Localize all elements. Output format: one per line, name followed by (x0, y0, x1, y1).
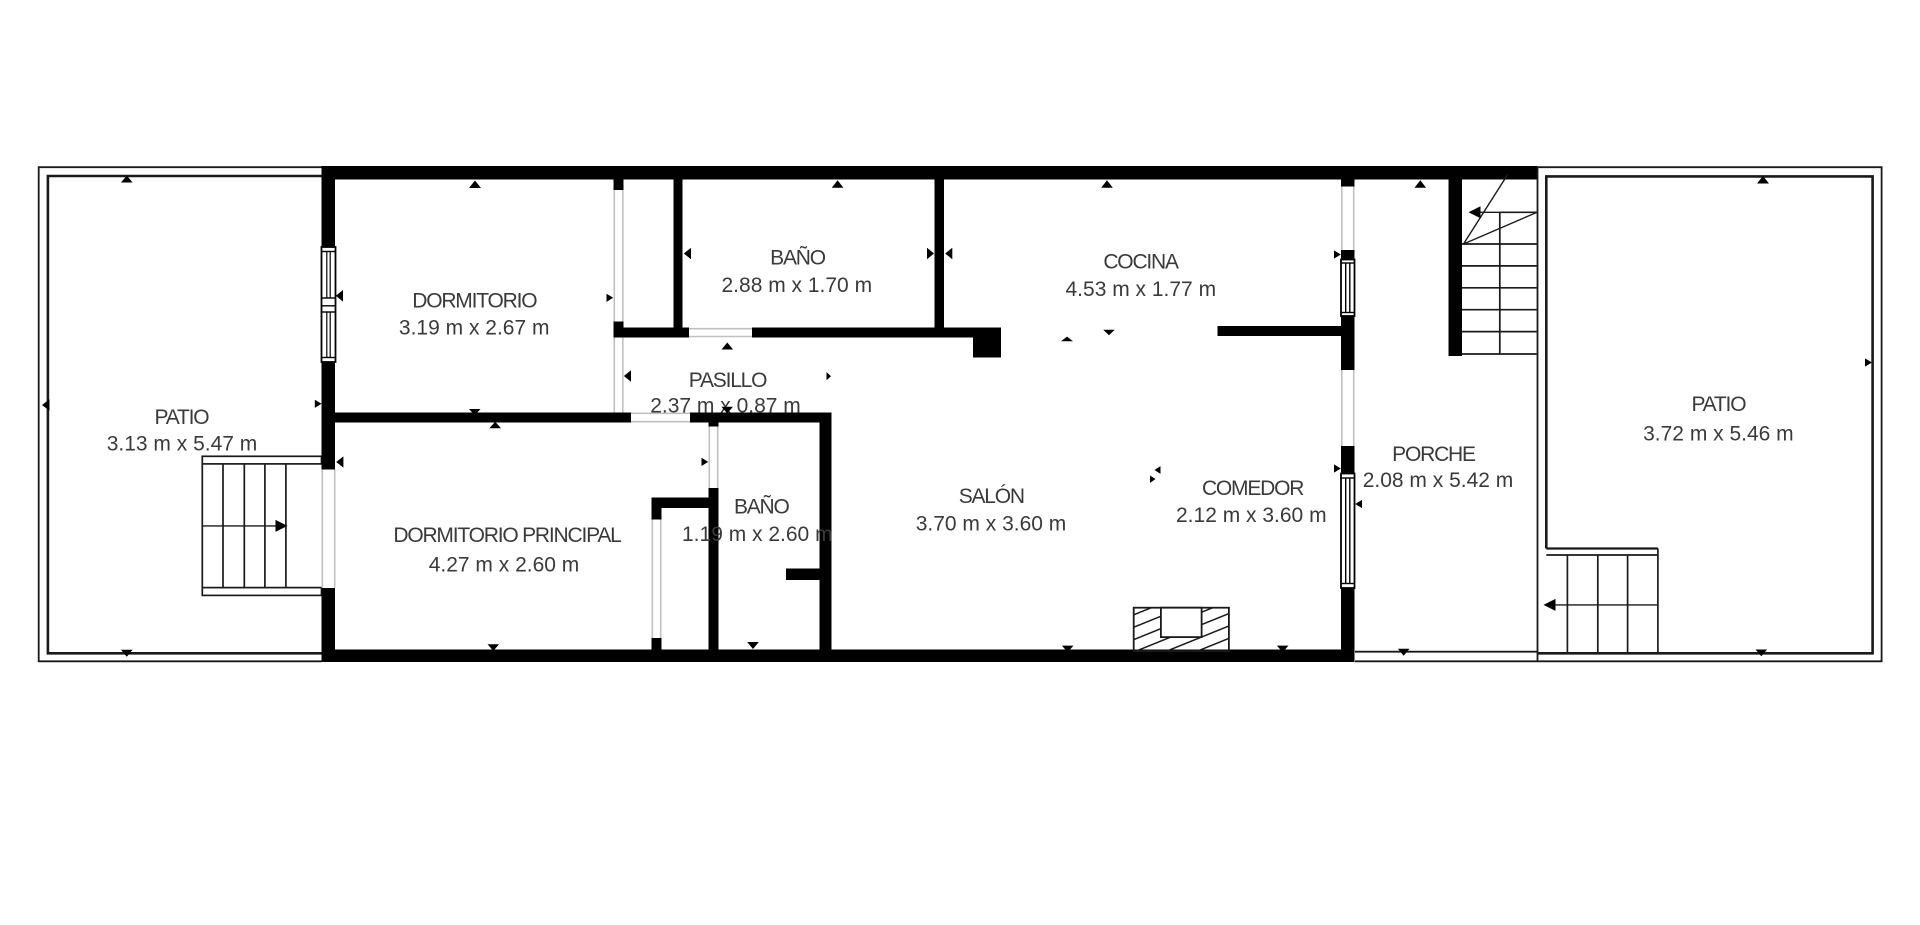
svg-text:3.70 m x 3.60 m: 3.70 m x 3.60 m (916, 512, 1067, 535)
svg-text:PATIO: PATIO (1691, 393, 1746, 416)
svg-text:DORMITORIO PRINCIPAL: DORMITORIO PRINCIPAL (393, 524, 621, 547)
svg-text:DORMITORIO: DORMITORIO (412, 289, 537, 312)
svg-text:3.72 m x 5.46 m: 3.72 m x 5.46 m (1643, 423, 1794, 446)
svg-text:4.27 m x 2.60 m: 4.27 m x 2.60 m (429, 554, 580, 577)
svg-text:BAÑO: BAÑO (734, 494, 790, 518)
svg-text:COCINA: COCINA (1103, 251, 1179, 274)
svg-text:COMEDOR: COMEDOR (1202, 477, 1304, 500)
svg-text:BAÑO: BAÑO (770, 245, 826, 269)
svg-text:PASILLO: PASILLO (689, 369, 767, 392)
svg-text:3.13 m x 5.47 m: 3.13 m x 5.47 m (107, 433, 258, 456)
svg-text:2.08 m x 5.42 m: 2.08 m x 5.42 m (1363, 469, 1514, 492)
svg-text:2.37 m x 0.87 m: 2.37 m x 0.87 m (650, 394, 801, 417)
svg-text:SALÓN: SALÓN (959, 485, 1024, 508)
svg-text:4.53 m x 1.77 m: 4.53 m x 1.77 m (1066, 278, 1217, 301)
svg-text:3.19 m x 2.67 m: 3.19 m x 2.67 m (399, 317, 550, 340)
svg-text:2.88 m x 1.70 m: 2.88 m x 1.70 m (722, 274, 873, 297)
svg-text:PATIO: PATIO (155, 406, 210, 429)
svg-text:PORCHE: PORCHE (1392, 443, 1476, 466)
svg-text:1.19 m x 2.60 m: 1.19 m x 2.60 m (682, 523, 833, 546)
svg-text:2.12 m x 3.60 m: 2.12 m x 3.60 m (1176, 504, 1327, 527)
